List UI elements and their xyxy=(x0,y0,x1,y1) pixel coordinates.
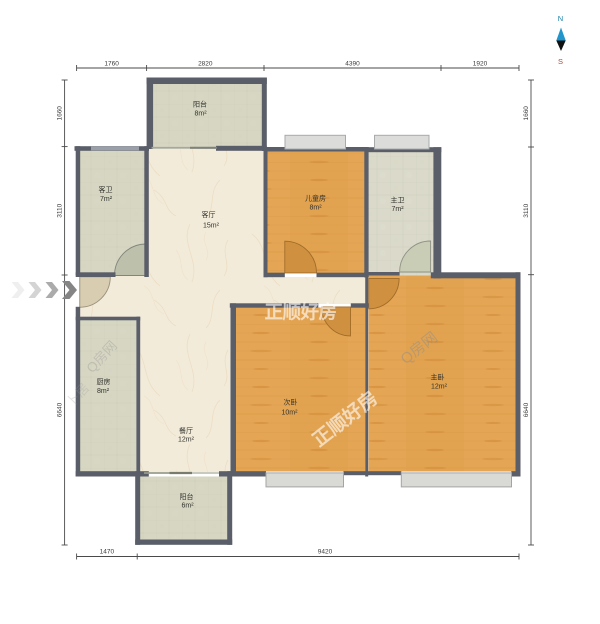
svg-text:1660: 1660 xyxy=(57,106,64,121)
svg-text:15m²: 15m² xyxy=(203,223,220,230)
svg-text:7m²: 7m² xyxy=(100,196,113,203)
svg-text:主卫: 主卫 xyxy=(391,196,405,205)
svg-text:8m²: 8m² xyxy=(97,388,110,395)
svg-text:4390: 4390 xyxy=(345,61,360,68)
svg-text:12m²: 12m² xyxy=(431,384,448,391)
svg-text:S: S xyxy=(558,57,563,66)
svg-text:1660: 1660 xyxy=(523,106,530,121)
svg-text:8m²: 8m² xyxy=(309,205,322,212)
svg-text:1470: 1470 xyxy=(100,549,115,556)
svg-text:2820: 2820 xyxy=(198,61,213,68)
svg-text:1920: 1920 xyxy=(473,61,488,68)
svg-text:3110: 3110 xyxy=(523,203,530,217)
svg-text:厨房: 厨房 xyxy=(97,377,111,386)
svg-text:3110: 3110 xyxy=(57,203,64,217)
svg-text:6m²: 6m² xyxy=(181,503,194,510)
svg-text:正顺好房: 正顺好房 xyxy=(264,302,336,323)
svg-text:阳台: 阳台 xyxy=(193,100,207,109)
svg-text:主卧: 主卧 xyxy=(431,373,445,382)
svg-text:6640: 6640 xyxy=(523,402,530,417)
svg-text:餐厅: 餐厅 xyxy=(179,426,193,435)
svg-text:客卫: 客卫 xyxy=(99,185,113,194)
svg-text:9420: 9420 xyxy=(318,549,333,556)
svg-text:10m²: 10m² xyxy=(282,410,299,417)
svg-text:6640: 6640 xyxy=(57,402,64,417)
svg-text:8m²: 8m² xyxy=(194,111,207,118)
svg-text:7m²: 7m² xyxy=(391,206,404,213)
svg-text:1760: 1760 xyxy=(104,61,119,68)
svg-text:客厅: 客厅 xyxy=(202,210,216,219)
svg-text:次卧: 次卧 xyxy=(284,398,298,407)
svg-text:N: N xyxy=(558,14,563,23)
svg-text:12m²: 12m² xyxy=(178,437,195,444)
svg-text:儿童房: 儿童房 xyxy=(305,194,326,203)
svg-text:阳台: 阳台 xyxy=(180,492,194,501)
